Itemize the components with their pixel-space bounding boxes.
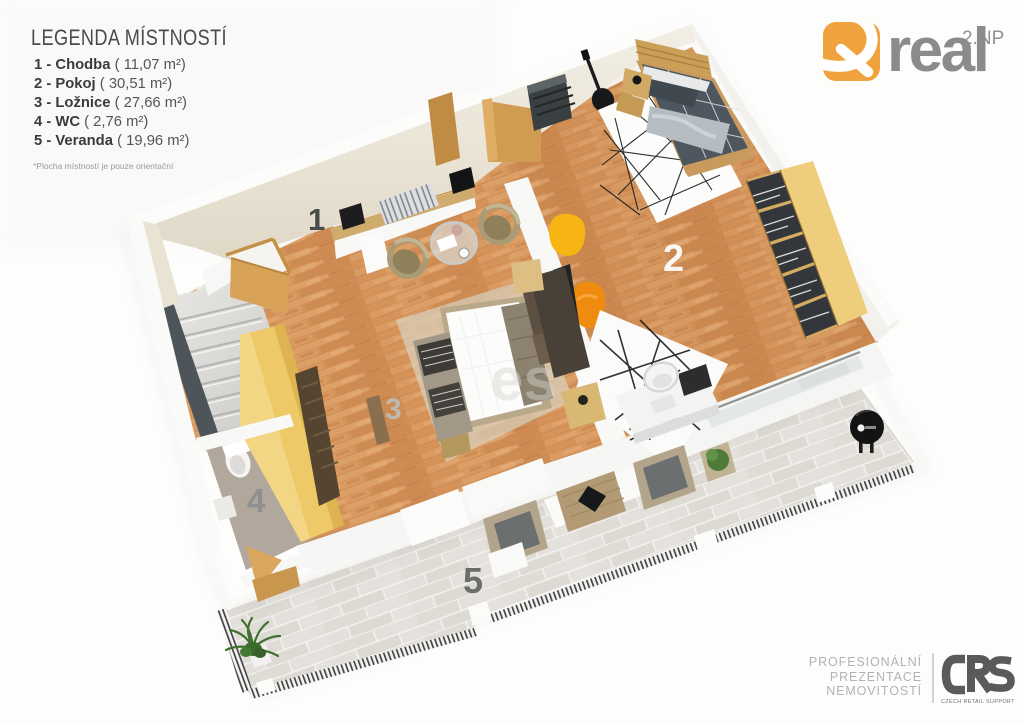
svg-text:1 - Chodba ( 11,07 m²): 1 - Chodba ( 11,07 m²) (34, 57, 186, 73)
svg-text:3: 3 (385, 393, 402, 426)
svg-text:PREZENTACE: PREZENTACE (830, 670, 922, 684)
svg-text:real: real (887, 16, 987, 85)
svg-text:es: es (490, 346, 557, 413)
svg-text:5: 5 (463, 560, 483, 601)
svg-text:PROFESIONÁLNÍ: PROFESIONÁLNÍ (809, 654, 922, 669)
svg-text:4: 4 (247, 482, 266, 519)
svg-text:*Plocha místností je pouze ori: *Plocha místností je pouze orientační (33, 161, 174, 171)
svg-text:2 - Pokoj ( 30,51 m²): 2 - Pokoj ( 30,51 m²) (34, 76, 172, 92)
svg-text:LEGENDA MÍSTNOSTÍ: LEGENDA MÍSTNOSTÍ (31, 25, 227, 50)
svg-text:2: 2 (663, 238, 684, 280)
svg-text:3 - Ložnice ( 27,66 m²): 3 - Ložnice ( 27,66 m²) (34, 95, 187, 111)
svg-text:CZECH RETAIL SUPPORT: CZECH RETAIL SUPPORT (941, 699, 1015, 705)
svg-text:NEMOVITOSTÍ: NEMOVITOSTÍ (826, 683, 922, 698)
svg-text:1: 1 (308, 202, 325, 237)
svg-text:5 - Veranda ( 19,96 m²): 5 - Veranda ( 19,96 m²) (34, 133, 190, 149)
svg-text:4 - WC ( 2,76 m²): 4 - WC ( 2,76 m²) (34, 114, 148, 130)
